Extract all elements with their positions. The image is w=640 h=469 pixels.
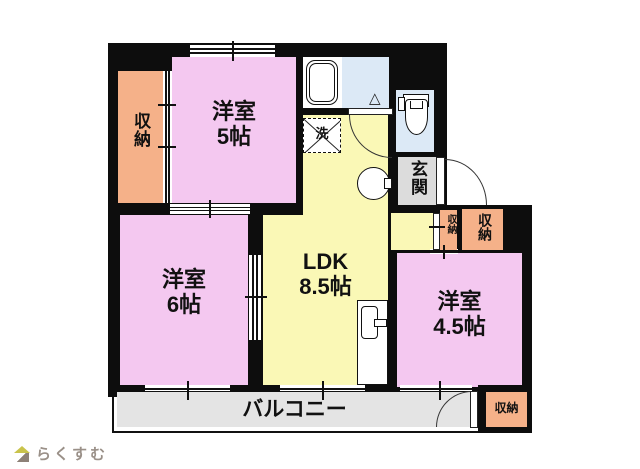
bath-door-threshold xyxy=(348,108,393,115)
bathtub-icon xyxy=(306,60,338,105)
western6-size: 6帖 xyxy=(120,293,248,318)
western5-size: 5帖 xyxy=(172,125,296,150)
entrance-label: 玄関 xyxy=(405,160,430,196)
storage-left-label: 収納 xyxy=(128,112,153,148)
entrance-door-arc xyxy=(445,159,487,205)
rakusumu-logo: らくすむ xyxy=(14,443,108,464)
door-tick xyxy=(443,245,445,259)
western6-name: 洋室 xyxy=(120,268,248,293)
ldk-name: LDK xyxy=(263,250,388,275)
storage-hall-door xyxy=(433,213,440,250)
sliding-door-storage-left xyxy=(163,71,172,203)
storage-hall-label: 収納 xyxy=(443,214,458,234)
storage-bedroom-label: 収納 xyxy=(475,213,495,241)
room-washroom xyxy=(342,57,389,108)
toilet-seat-icon xyxy=(410,101,423,109)
western45-label: 洋室 4.5帖 xyxy=(397,290,522,339)
bath-folding-door-icon: △ xyxy=(369,91,381,106)
house-icon xyxy=(14,446,30,462)
door-tick xyxy=(209,200,211,218)
balcony-label: バルコニー xyxy=(117,398,472,422)
balcony-outline-left xyxy=(112,397,114,433)
western5-label: 洋室 5帖 xyxy=(172,100,296,149)
washbasin-tap-icon xyxy=(384,178,392,189)
window-tick xyxy=(232,41,234,61)
laundry-label: 洗 xyxy=(303,127,341,142)
toilet-side-icon xyxy=(398,97,405,111)
logo-text: らくすむ xyxy=(36,443,108,464)
western45-size: 4.5帖 xyxy=(397,315,522,340)
storage-balcony-label: 収納 xyxy=(486,402,527,415)
entrance-door-leaf xyxy=(436,157,445,205)
western45-name: 洋室 xyxy=(397,290,522,315)
ldk-size: 8.5帖 xyxy=(263,275,388,300)
balcony-outline-bottom xyxy=(112,431,478,433)
ldk-label: LDK 8.5帖 xyxy=(263,250,388,299)
floorplan-page: { "floorplan": { "rooms": { "western5": … xyxy=(0,0,640,469)
kitchen-faucet-icon xyxy=(374,319,387,327)
western5-name: 洋室 xyxy=(172,100,296,125)
western6-label: 洋室 6帖 xyxy=(120,268,248,317)
room-ldk-hall-strip xyxy=(391,213,433,250)
